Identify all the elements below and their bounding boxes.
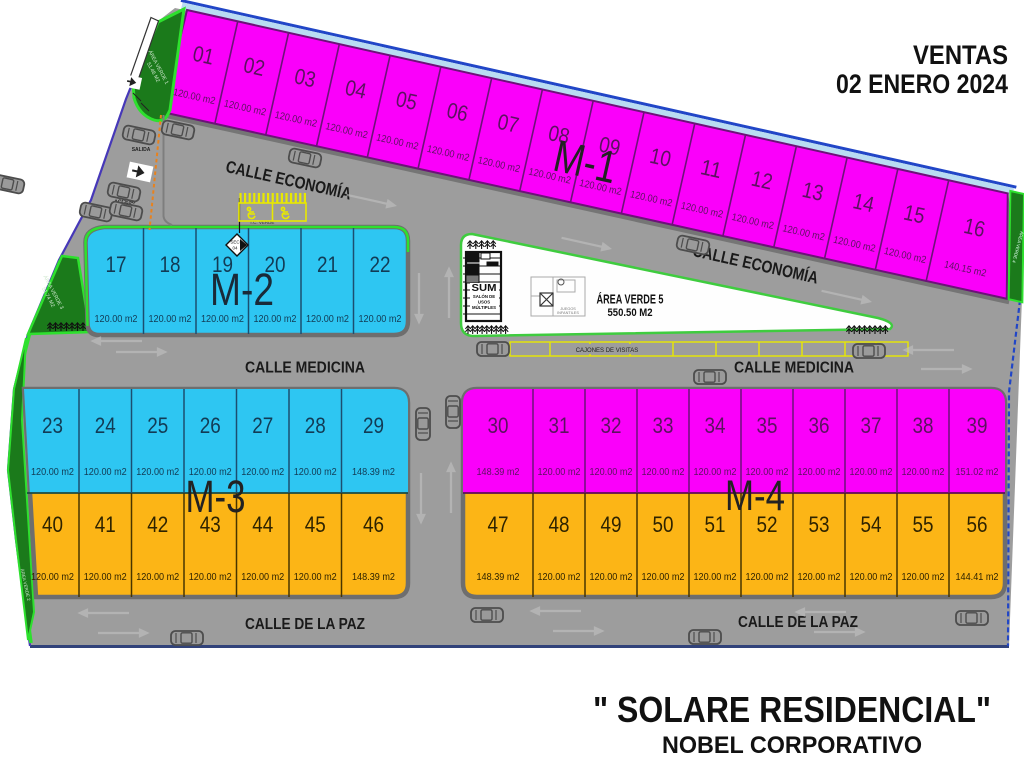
svg-text:148.39 m2: 148.39 m2 (352, 467, 395, 478)
svg-text:23: 23 (42, 413, 63, 438)
svg-text:144.41 m2: 144.41 m2 (956, 572, 999, 583)
svg-text:35: 35 (757, 413, 778, 438)
svg-text:120.00 m2: 120.00 m2 (850, 572, 893, 583)
svg-text:120.00 m2: 120.00 m2 (31, 467, 74, 478)
svg-text:M-4: M-4 (725, 472, 785, 520)
svg-text:120.00 m2: 120.00 m2 (294, 467, 337, 478)
svg-text:04: 04 (232, 246, 238, 251)
svg-text:17: 17 (106, 252, 127, 277)
svg-text:120.00 m2: 120.00 m2 (136, 572, 179, 583)
svg-text:120.00 m2: 120.00 m2 (538, 467, 581, 478)
svg-text:NOBEL CORPORATIVO: NOBEL CORPORATIVO (662, 732, 922, 759)
svg-text:41: 41 (95, 512, 116, 537)
svg-text:27: 27 (252, 413, 273, 438)
svg-text:MÚLTIPLES: MÚLTIPLES (472, 305, 496, 310)
svg-text:SEC: SEC (230, 240, 240, 245)
svg-text:55: 55 (913, 512, 934, 537)
svg-text:120.00 m2: 120.00 m2 (241, 467, 284, 478)
svg-text:40: 40 (42, 512, 63, 537)
svg-text:148.39 m2: 148.39 m2 (477, 572, 520, 583)
svg-text:148.39 m2: 148.39 m2 (352, 572, 395, 583)
svg-text:120.00 m2: 120.00 m2 (746, 572, 789, 583)
svg-text:34: 34 (705, 413, 726, 438)
svg-text:38: 38 (913, 413, 934, 438)
svg-text:120.00 m2: 120.00 m2 (294, 572, 337, 583)
svg-text:SALIDA: SALIDA (132, 147, 151, 153)
svg-text:39: 39 (967, 413, 988, 438)
svg-text:50: 50 (653, 512, 674, 537)
svg-text:ÁREA VERDE 5: ÁREA VERDE 5 (597, 292, 664, 307)
svg-text:120.00 m2: 120.00 m2 (902, 467, 945, 478)
svg-text:M-2: M-2 (210, 264, 274, 315)
svg-text:32: 32 (601, 413, 622, 438)
svg-text:120.00 m2: 120.00 m2 (201, 314, 244, 325)
svg-text:120.00 m2: 120.00 m2 (95, 314, 138, 325)
svg-text:120.00 m2: 120.00 m2 (694, 572, 737, 583)
svg-text:56: 56 (967, 512, 988, 537)
svg-text:CAJONES DE VISITAS: CAJONES DE VISITAS (576, 348, 639, 354)
svg-text:INFANTILES: INFANTILES (557, 311, 579, 315)
svg-text:CALLE DE LA PAZ: CALLE DE LA PAZ (245, 616, 365, 633)
svg-text:" SOLARE RESIDENCIAL": " SOLARE RESIDENCIAL" (593, 689, 991, 730)
svg-text:151.02 m2: 151.02 m2 (956, 467, 999, 478)
svg-text:24: 24 (95, 413, 116, 438)
svg-text:SALÓN DE: SALÓN DE (473, 294, 495, 299)
svg-text:44: 44 (252, 512, 273, 537)
svg-text:120.00 m2: 120.00 m2 (359, 314, 402, 325)
svg-text:CALLE MEDICINA: CALLE MEDICINA (245, 360, 365, 377)
svg-text:USOS: USOS (478, 300, 490, 305)
svg-text:120.00 m2: 120.00 m2 (590, 572, 633, 583)
svg-text:148.39 m2: 148.39 m2 (477, 467, 520, 478)
svg-text:120.00 m2: 120.00 m2 (850, 467, 893, 478)
svg-text:120.00 m2: 120.00 m2 (902, 572, 945, 583)
svg-text:54: 54 (861, 512, 882, 537)
svg-text:21: 21 (317, 252, 338, 277)
svg-text:120.00 m2: 120.00 m2 (241, 572, 284, 583)
svg-text:22: 22 (370, 252, 391, 277)
svg-text:25: 25 (147, 413, 168, 438)
svg-text:120.00 m2: 120.00 m2 (538, 572, 581, 583)
svg-text:48: 48 (549, 512, 570, 537)
svg-text:CALLE MEDICINA: CALLE MEDICINA (734, 360, 854, 377)
svg-text:46: 46 (363, 512, 384, 537)
svg-text:120.00 m2: 120.00 m2 (306, 314, 349, 325)
svg-text:36: 36 (809, 413, 830, 438)
svg-text:120.00 m2: 120.00 m2 (642, 467, 685, 478)
svg-text:120.00 m2: 120.00 m2 (798, 572, 841, 583)
svg-text:120.00 m2: 120.00 m2 (84, 572, 127, 583)
svg-text:M-3: M-3 (186, 471, 246, 522)
svg-text:28: 28 (305, 413, 326, 438)
svg-text:42: 42 (147, 512, 168, 537)
svg-text:29: 29 (363, 413, 384, 438)
svg-text:120.00 m2: 120.00 m2 (642, 572, 685, 583)
svg-text:51: 51 (705, 512, 726, 537)
svg-text:26: 26 (200, 413, 221, 438)
svg-text:CALLE DE LA PAZ: CALLE DE LA PAZ (738, 614, 858, 631)
svg-text:37: 37 (861, 413, 882, 438)
svg-text:47: 47 (488, 512, 509, 537)
svg-text:31: 31 (549, 413, 570, 438)
svg-text:49: 49 (601, 512, 622, 537)
svg-text:120.00 m2: 120.00 m2 (136, 467, 179, 478)
svg-text:VENTAS: VENTAS (913, 40, 1008, 70)
svg-text:120.00 m2: 120.00 m2 (798, 467, 841, 478)
svg-text:120.00 m2: 120.00 m2 (590, 467, 633, 478)
svg-text:120.00 m2: 120.00 m2 (84, 467, 127, 478)
svg-text:02 ENERO 2024: 02 ENERO 2024 (836, 69, 1008, 99)
svg-text:30: 30 (488, 413, 509, 438)
svg-text:53: 53 (809, 512, 830, 537)
svg-text:120.00 m2: 120.00 m2 (189, 572, 232, 583)
svg-text:120.00 m2: 120.00 m2 (149, 314, 192, 325)
svg-text:45: 45 (305, 512, 326, 537)
svg-text:SUM: SUM (472, 283, 497, 294)
svg-text:120.00 m2: 120.00 m2 (31, 572, 74, 583)
svg-text:120.00 m2: 120.00 m2 (254, 314, 297, 325)
svg-text:18: 18 (160, 252, 181, 277)
svg-text:33: 33 (653, 413, 674, 438)
svg-text:550.50 M2: 550.50 M2 (608, 307, 653, 319)
